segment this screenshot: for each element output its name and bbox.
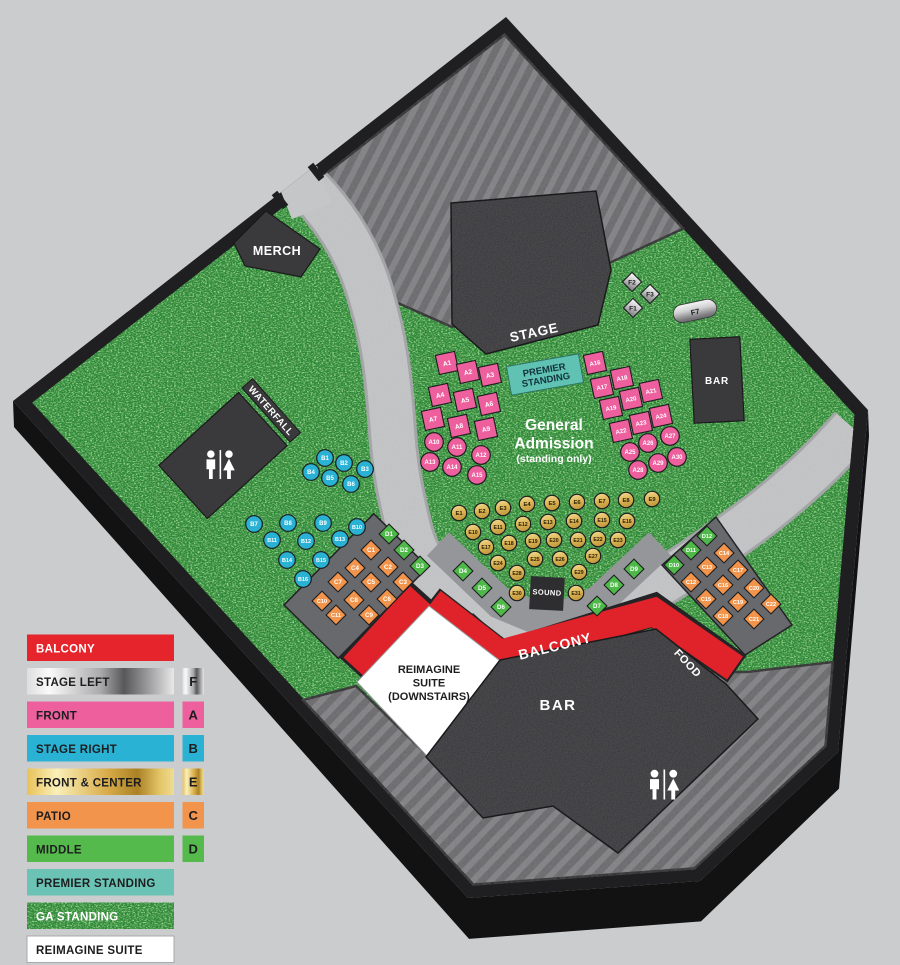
svg-text:D7: D7 [593, 603, 601, 610]
svg-text:E18: E18 [504, 541, 513, 547]
svg-text:E25: E25 [530, 557, 539, 563]
svg-text:B6: B6 [347, 482, 355, 488]
svg-text:E4: E4 [523, 502, 531, 508]
svg-text:D5: D5 [478, 585, 486, 592]
svg-text:E16: E16 [622, 519, 631, 525]
svg-text:D11: D11 [686, 548, 696, 554]
svg-text:BALCONY: BALCONY [36, 644, 95, 656]
svg-text:C5: C5 [367, 579, 375, 586]
svg-text:MERCH: MERCH [253, 244, 301, 258]
svg-text:A25: A25 [624, 450, 636, 456]
svg-text:A15: A15 [471, 473, 483, 479]
svg-text:A26: A26 [642, 441, 654, 447]
svg-text:D12: D12 [702, 534, 712, 540]
svg-text:B16: B16 [298, 577, 308, 583]
svg-text:D8: D8 [610, 582, 618, 589]
svg-text:B13: B13 [335, 537, 345, 543]
svg-text:E31: E31 [571, 591, 580, 597]
svg-text:C12: C12 [686, 580, 696, 586]
svg-text:A28: A28 [632, 468, 644, 474]
svg-text:E27: E27 [588, 554, 597, 560]
svg-text:A30: A30 [671, 455, 683, 461]
svg-text:E15: E15 [597, 518, 606, 524]
svg-text:C19: C19 [733, 600, 743, 606]
svg-text:B11: B11 [267, 538, 277, 544]
svg-text:BAR: BAR [540, 697, 577, 714]
svg-text:D: D [189, 842, 198, 857]
svg-text:B10: B10 [352, 525, 362, 531]
svg-text:C20: C20 [749, 586, 759, 592]
svg-text:C: C [189, 808, 199, 823]
svg-text:E20: E20 [549, 538, 558, 544]
svg-text:B4: B4 [307, 470, 315, 476]
svg-text:B9: B9 [319, 521, 327, 527]
svg-text:A10: A10 [428, 440, 440, 446]
svg-text:E12: E12 [518, 522, 527, 528]
svg-text:C14: C14 [719, 551, 730, 557]
svg-text:E10: E10 [468, 530, 477, 536]
svg-text:(standing only): (standing only) [516, 453, 591, 465]
svg-text:C6: C6 [383, 596, 391, 603]
svg-text:E13: E13 [543, 520, 552, 526]
svg-text:B15: B15 [316, 558, 326, 564]
svg-text:GA STANDING: GA STANDING [36, 912, 119, 924]
svg-text:D1: D1 [385, 531, 393, 538]
svg-text:SOUND: SOUND [532, 587, 562, 598]
svg-text:C8: C8 [350, 597, 358, 604]
svg-text:C15: C15 [701, 597, 711, 603]
svg-text:C2: C2 [384, 564, 392, 571]
svg-text:STAGE LEFT: STAGE LEFT [36, 677, 110, 689]
svg-text:B7: B7 [250, 522, 258, 528]
svg-text:D10: D10 [669, 563, 679, 569]
svg-text:E21: E21 [573, 538, 582, 544]
svg-text:D6: D6 [497, 604, 505, 611]
svg-text:F2: F2 [628, 279, 636, 286]
svg-text:B1: B1 [321, 456, 329, 462]
svg-text:A12: A12 [475, 453, 487, 459]
svg-text:E2: E2 [478, 509, 485, 515]
svg-text:E11: E11 [494, 525, 503, 531]
svg-text:D4: D4 [459, 568, 467, 575]
svg-text:B14: B14 [282, 558, 292, 564]
svg-text:F3: F3 [646, 291, 654, 298]
svg-text:E19: E19 [528, 539, 537, 545]
svg-text:B2: B2 [340, 461, 348, 467]
svg-text:B8: B8 [284, 521, 292, 527]
svg-text:C7: C7 [334, 579, 342, 586]
svg-text:A14: A14 [446, 465, 458, 471]
svg-text:C11: C11 [331, 613, 341, 619]
svg-text:C10: C10 [317, 599, 327, 605]
svg-text:A27: A27 [664, 434, 676, 440]
svg-text:REIMAGINE SUITE: REIMAGINE SUITE [36, 945, 143, 957]
svg-text:B: B [189, 741, 198, 756]
svg-text:E8: E8 [622, 498, 630, 504]
svg-text:C3: C3 [399, 579, 407, 586]
svg-text:A13: A13 [424, 460, 436, 466]
svg-text:F7: F7 [690, 307, 700, 318]
svg-text:C4: C4 [351, 565, 359, 572]
svg-text:E3: E3 [499, 506, 507, 512]
svg-text:B12: B12 [301, 539, 311, 545]
svg-text:A11: A11 [452, 445, 463, 451]
svg-text:F1: F1 [629, 305, 637, 312]
svg-text:C13: C13 [702, 565, 712, 571]
svg-text:A: A [189, 708, 199, 723]
svg-text:E6: E6 [573, 500, 581, 506]
svg-text:BAR: BAR [705, 376, 729, 387]
svg-text:A29: A29 [652, 461, 664, 467]
svg-text:E7: E7 [598, 499, 605, 505]
svg-text:C16: C16 [718, 583, 728, 589]
svg-text:E26: E26 [555, 557, 564, 563]
svg-text:FRONT: FRONT [36, 711, 77, 723]
svg-text:E28: E28 [512, 571, 521, 577]
svg-text:C17: C17 [733, 568, 743, 574]
svg-text:PREMIER STANDING: PREMIER STANDING [36, 878, 156, 890]
svg-text:E22: E22 [593, 537, 602, 543]
svg-text:E1: E1 [455, 511, 463, 517]
svg-text:E23: E23 [613, 538, 622, 544]
svg-text:FRONT & CENTER: FRONT & CENTER [36, 778, 142, 790]
svg-text:E24: E24 [493, 561, 502, 567]
svg-text:GeneralAdmission: GeneralAdmission [514, 417, 593, 453]
svg-text:E14: E14 [569, 519, 578, 525]
svg-text:E9: E9 [648, 497, 656, 503]
svg-text:E30: E30 [512, 591, 521, 597]
svg-text:B3: B3 [361, 467, 369, 473]
svg-text:C1: C1 [367, 547, 375, 554]
svg-text:C9: C9 [365, 612, 373, 619]
svg-text:F: F [189, 674, 197, 689]
svg-text:STAGE RIGHT: STAGE RIGHT [36, 744, 117, 756]
svg-text:C18: C18 [718, 614, 728, 620]
svg-text:D9: D9 [630, 566, 638, 573]
svg-text:E29: E29 [574, 570, 583, 576]
svg-text:C21: C21 [749, 617, 759, 623]
svg-text:E5: E5 [548, 501, 556, 507]
svg-text:MIDDLE: MIDDLE [36, 845, 82, 857]
svg-text:C22: C22 [766, 602, 776, 608]
svg-text:D3: D3 [416, 563, 424, 570]
svg-text:PATIO: PATIO [36, 811, 71, 823]
svg-text:D2: D2 [400, 547, 408, 554]
svg-text:E17: E17 [481, 545, 490, 551]
svg-text:B5: B5 [326, 476, 334, 482]
svg-text:E: E [189, 775, 198, 790]
